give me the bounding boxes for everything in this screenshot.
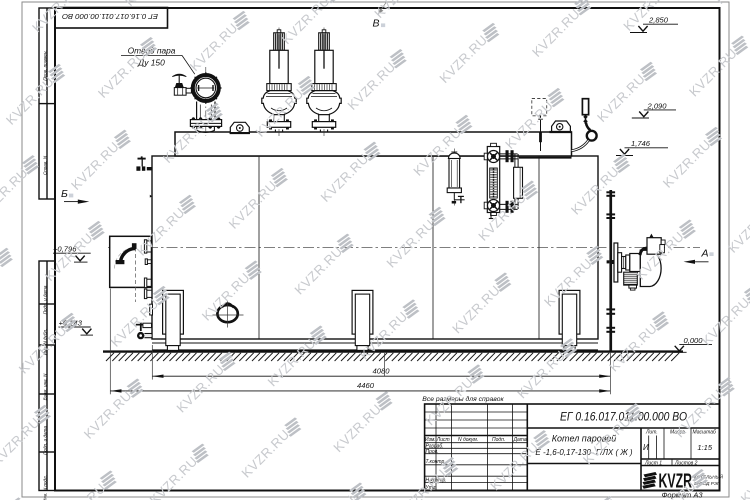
svg-text:Инв. N подл.: Инв. N подл. (43, 475, 48, 500)
svg-text:2,850: 2,850 (648, 16, 669, 25)
svg-text:Изм.: Изм. (425, 437, 436, 443)
svg-text:И: И (643, 443, 649, 452)
svg-text:В: В (373, 18, 380, 30)
svg-text:Дата: Дата (513, 437, 527, 443)
svg-text:Лит.: Лит. (645, 430, 658, 436)
svg-text:2,090: 2,090 (646, 101, 667, 110)
svg-text:Подп. и дата: Подп. и дата (43, 285, 48, 314)
svg-text:А: А (701, 248, 709, 260)
svg-text:Пров.: Пров. (426, 449, 439, 455)
svg-text:4080: 4080 (373, 366, 391, 375)
svg-text:4460: 4460 (357, 381, 375, 390)
svg-text:Лист: Лист (436, 437, 450, 443)
svg-text:Масштаб: Масштаб (693, 430, 717, 436)
svg-text:Взам. инв. N: Взам. инв. N (43, 373, 48, 400)
svg-text:1:15: 1:15 (697, 443, 712, 452)
svg-text:N докум.: N докум. (458, 437, 478, 443)
svg-text:Подп. и дата: Подп. и дата (43, 426, 48, 455)
svg-text:Подп.: Подп. (492, 437, 505, 443)
svg-text:Листов 2: Листов 2 (674, 461, 698, 467)
svg-text:1,746: 1,746 (631, 139, 651, 148)
svg-text:Лист 1: Лист 1 (644, 461, 662, 467)
svg-text:ЕГ 0.16.017.011.00.000 ВО: ЕГ 0.16.017.011.00.000 ВО (62, 12, 158, 21)
svg-text:Б: Б (61, 188, 68, 200)
svg-text:Справ. N: Справ. N (43, 155, 48, 175)
